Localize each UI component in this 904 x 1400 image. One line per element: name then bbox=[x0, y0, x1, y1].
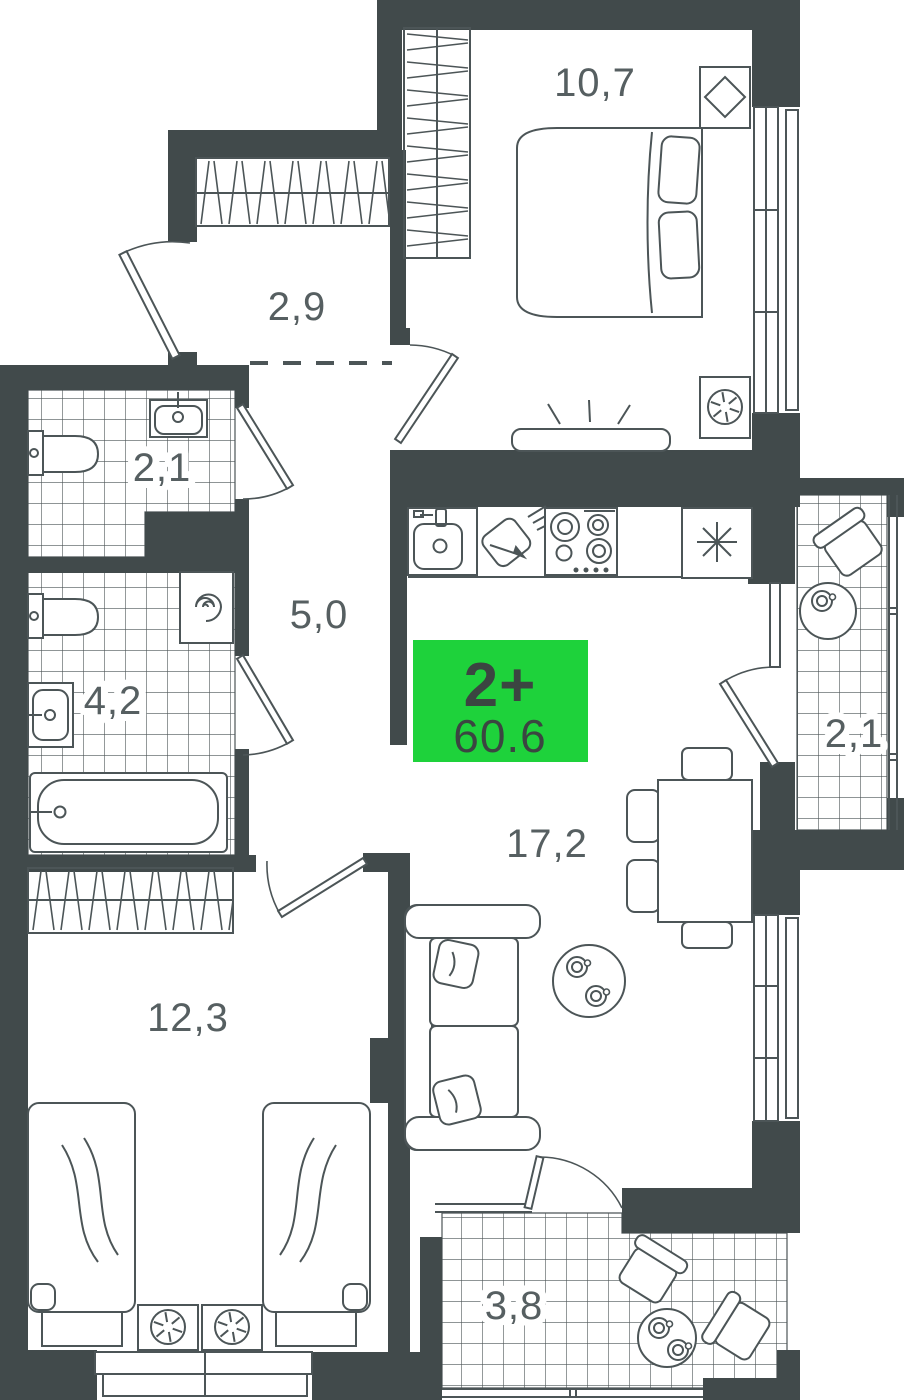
tv-icon bbox=[512, 400, 670, 451]
badge-area-label: 60.6 bbox=[453, 710, 547, 762]
wardrobe-icon bbox=[196, 158, 389, 226]
door-icon bbox=[237, 404, 293, 499]
chair-icon bbox=[682, 748, 732, 780]
door-icon bbox=[237, 655, 293, 755]
fridge-icon bbox=[682, 508, 752, 578]
room-label-corridor: 5,0 bbox=[290, 593, 349, 637]
chair-icon bbox=[627, 790, 660, 842]
double-bed-icon bbox=[517, 128, 702, 317]
pillow-icon bbox=[432, 938, 480, 989]
wardrobe-icon bbox=[28, 868, 233, 933]
stove-icon bbox=[545, 508, 617, 575]
room-label-bathroom: 4,2 bbox=[84, 679, 143, 723]
window-icon bbox=[770, 583, 780, 667]
window-icon bbox=[95, 1352, 312, 1396]
single-bed-icon bbox=[28, 1103, 135, 1346]
pillow-icon bbox=[431, 1074, 482, 1127]
room-label-loggia-right: 2,1 bbox=[825, 712, 884, 756]
window-icon bbox=[442, 1389, 703, 1397]
coffee-table-icon bbox=[553, 945, 625, 1017]
door-icon bbox=[267, 858, 367, 917]
toilet-icon bbox=[28, 431, 98, 475]
side-table-icon bbox=[800, 583, 856, 639]
washing-machine-icon bbox=[180, 572, 233, 643]
nightstand-icon bbox=[700, 67, 750, 128]
floorplan-svg: 10,7 2,9 2,1 5,0 4,2 17,2 12,3 2,1 3,8 2… bbox=[0, 0, 904, 1400]
bathtub-icon bbox=[30, 773, 227, 852]
sofa-icon bbox=[405, 905, 540, 1150]
kitchen-sink-icon bbox=[408, 508, 477, 575]
floorplan-canvas: 10,7 2,9 2,1 5,0 4,2 17,2 12,3 2,1 3,8 2… bbox=[0, 0, 904, 1400]
single-bed-icon bbox=[263, 1103, 370, 1346]
entrance-door-icon bbox=[119, 242, 190, 359]
room-label-living-kitchen: 17,2 bbox=[506, 822, 588, 866]
nightstand-icon bbox=[138, 1305, 198, 1350]
room-label-wc: 2,1 bbox=[133, 446, 192, 490]
door-icon bbox=[395, 345, 458, 443]
dining-table-icon bbox=[658, 780, 752, 922]
cutting-board-icon bbox=[479, 506, 553, 569]
plant-icon bbox=[151, 1310, 185, 1344]
toilet-icon bbox=[28, 594, 98, 638]
side-table-icon bbox=[638, 1309, 696, 1367]
pillow-icon bbox=[343, 1284, 367, 1310]
nightstand-icon bbox=[700, 377, 750, 438]
plant-icon bbox=[215, 1310, 249, 1344]
washbasin-icon bbox=[28, 683, 73, 747]
pillow-icon bbox=[31, 1284, 55, 1310]
wardrobe-icon bbox=[404, 28, 470, 258]
room-label-entry-hall: 2,9 bbox=[268, 285, 327, 329]
chair-icon bbox=[627, 860, 660, 912]
apartment-type-badge: 2+ 60.6 bbox=[413, 640, 588, 762]
window-icon bbox=[754, 107, 798, 413]
window-icon bbox=[754, 915, 798, 1121]
dining-set bbox=[627, 748, 752, 948]
window-icon bbox=[889, 495, 897, 830]
door-icon bbox=[525, 1156, 622, 1209]
nightstand-icon bbox=[202, 1305, 262, 1350]
room-label-bedroom-bottom: 12,3 bbox=[147, 996, 229, 1040]
room-label-loggia-bottom: 3,8 bbox=[485, 1284, 544, 1328]
plant-icon bbox=[708, 390, 742, 424]
window-icon bbox=[435, 1204, 532, 1212]
room-label-bedroom-top: 10,7 bbox=[554, 61, 636, 105]
chair-icon bbox=[682, 922, 732, 948]
